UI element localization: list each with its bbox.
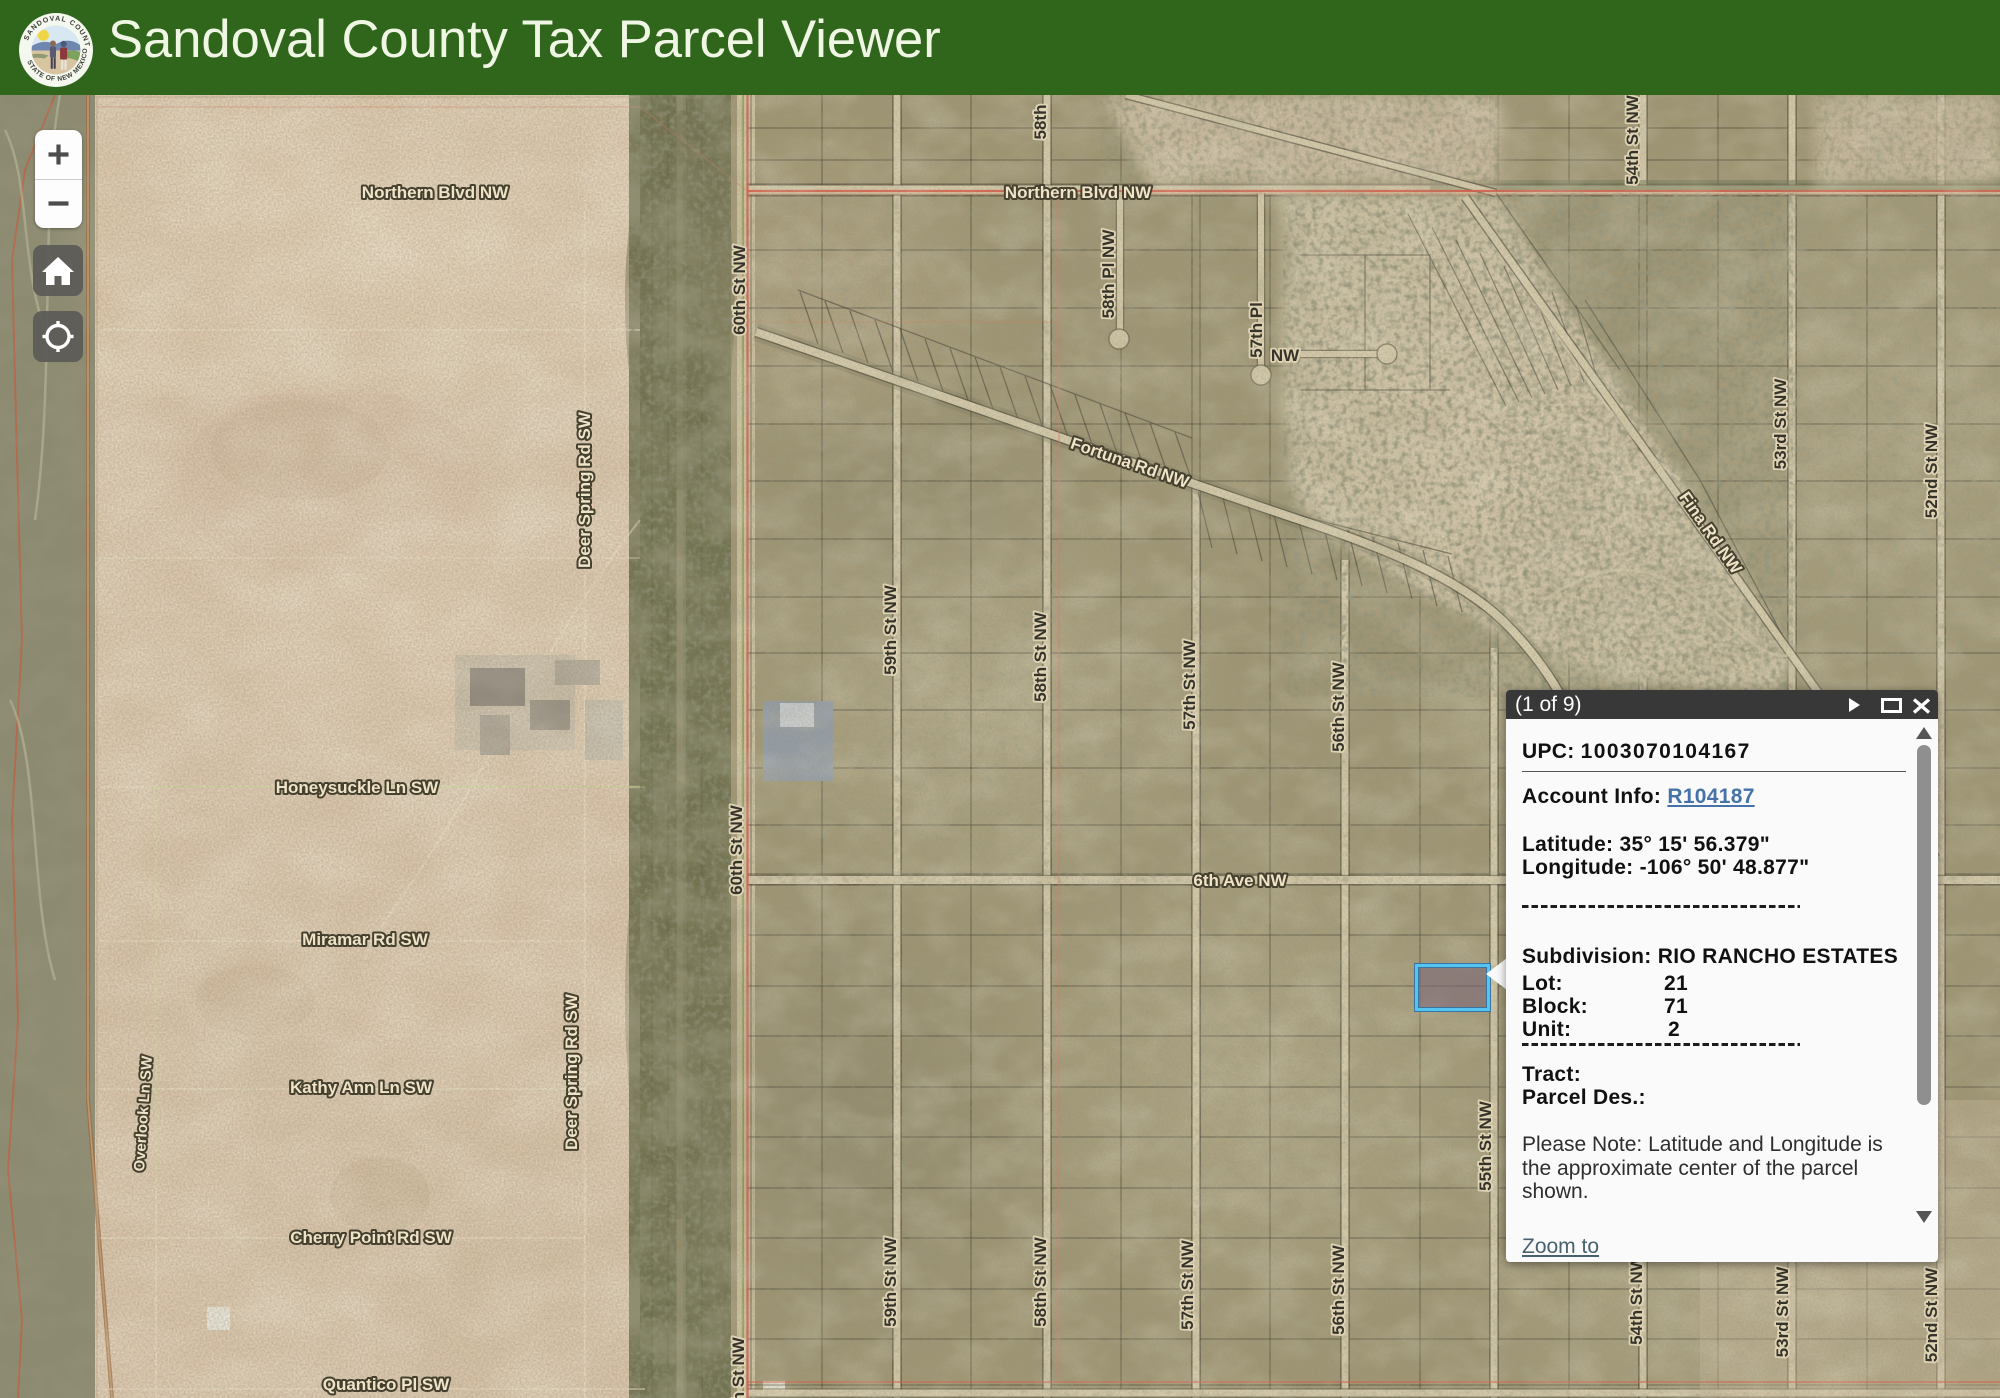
svg-text:Deer Spring Rd SW: Deer Spring Rd SW bbox=[562, 993, 581, 1150]
svg-text:60th St NW: 60th St NW bbox=[729, 1336, 748, 1398]
svg-text:Quantico Pl SW: Quantico Pl SW bbox=[323, 1375, 451, 1394]
svg-text:53rd St NW: 53rd St NW bbox=[1771, 378, 1790, 470]
svg-text:54th St NW: 54th St NW bbox=[1627, 1254, 1646, 1345]
svg-text:58th St NW: 58th St NW bbox=[1031, 611, 1050, 702]
svg-text:Northern Blvd NW: Northern Blvd NW bbox=[1005, 183, 1152, 202]
svg-text:58th: 58th bbox=[1031, 105, 1050, 140]
svg-text:59th St NW: 59th St NW bbox=[881, 584, 900, 675]
svg-text:60th St NW: 60th St NW bbox=[727, 804, 746, 895]
svg-text:Deer Spring Rd SW: Deer Spring Rd SW bbox=[575, 411, 594, 568]
svg-text:Miramar Rd SW: Miramar Rd SW bbox=[302, 930, 429, 949]
svg-text:53rd St NW: 53rd St NW bbox=[1773, 1266, 1792, 1358]
svg-text:6th Ave NW: 6th Ave NW bbox=[1193, 871, 1287, 890]
svg-text:56th St NW: 56th St NW bbox=[1329, 661, 1348, 752]
svg-text:57th St NW: 57th St NW bbox=[1180, 639, 1199, 730]
svg-text:Kathy Ann Ln SW: Kathy Ann Ln SW bbox=[290, 1078, 433, 1097]
svg-text:Northern Blvd NW: Northern Blvd NW bbox=[362, 183, 509, 202]
svg-text:58th Pl NW: 58th Pl NW bbox=[1099, 229, 1118, 319]
svg-text:55th St NW: 55th St NW bbox=[1476, 1100, 1495, 1191]
svg-text:57th St NW: 57th St NW bbox=[1178, 1239, 1197, 1330]
svg-text:57th Pl: 57th Pl bbox=[1247, 302, 1266, 358]
svg-text:54th St NW: 54th St NW bbox=[1623, 94, 1642, 185]
svg-text:59th St NW: 59th St NW bbox=[881, 1236, 900, 1327]
svg-text:Honeysuckle Ln SW: Honeysuckle Ln SW bbox=[276, 778, 439, 797]
svg-text:NW: NW bbox=[1271, 346, 1300, 365]
svg-text:52nd St NW: 52nd St NW bbox=[1922, 1267, 1941, 1362]
svg-text:Cherry Point Rd SW: Cherry Point Rd SW bbox=[290, 1228, 452, 1247]
svg-text:58th St NW: 58th St NW bbox=[1031, 1236, 1050, 1327]
svg-text:52nd St NW: 52nd St NW bbox=[1922, 423, 1941, 518]
svg-text:60th St NW: 60th St NW bbox=[730, 244, 749, 335]
svg-text:56th St NW: 56th St NW bbox=[1329, 1244, 1348, 1335]
